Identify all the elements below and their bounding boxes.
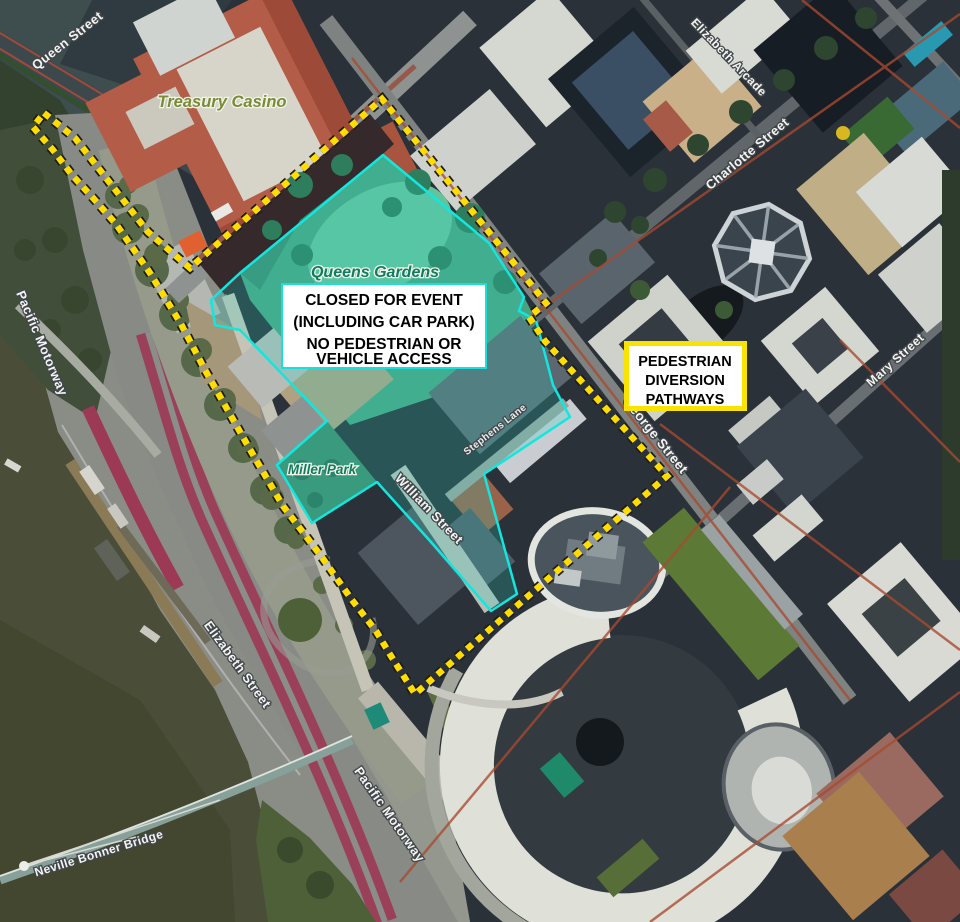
svg-text:PATHWAYS: PATHWAYS: [646, 392, 725, 408]
svg-text:(INCLUDING CAR PARK): (INCLUDING CAR PARK): [293, 314, 474, 331]
svg-text:VEHICLE ACCESS: VEHICLE ACCESS: [316, 351, 452, 368]
svg-text:PEDESTRIAN: PEDESTRIAN: [638, 354, 731, 370]
svg-text:Queens Gardens: Queens Gardens: [311, 264, 439, 281]
svg-text:DIVERSION: DIVERSION: [645, 373, 725, 389]
svg-text:CLOSED FOR EVENT: CLOSED FOR EVENT: [305, 292, 463, 309]
svg-text:Miller Park: Miller Park: [288, 462, 358, 477]
svg-text:Treasury Casino: Treasury Casino: [157, 93, 286, 111]
